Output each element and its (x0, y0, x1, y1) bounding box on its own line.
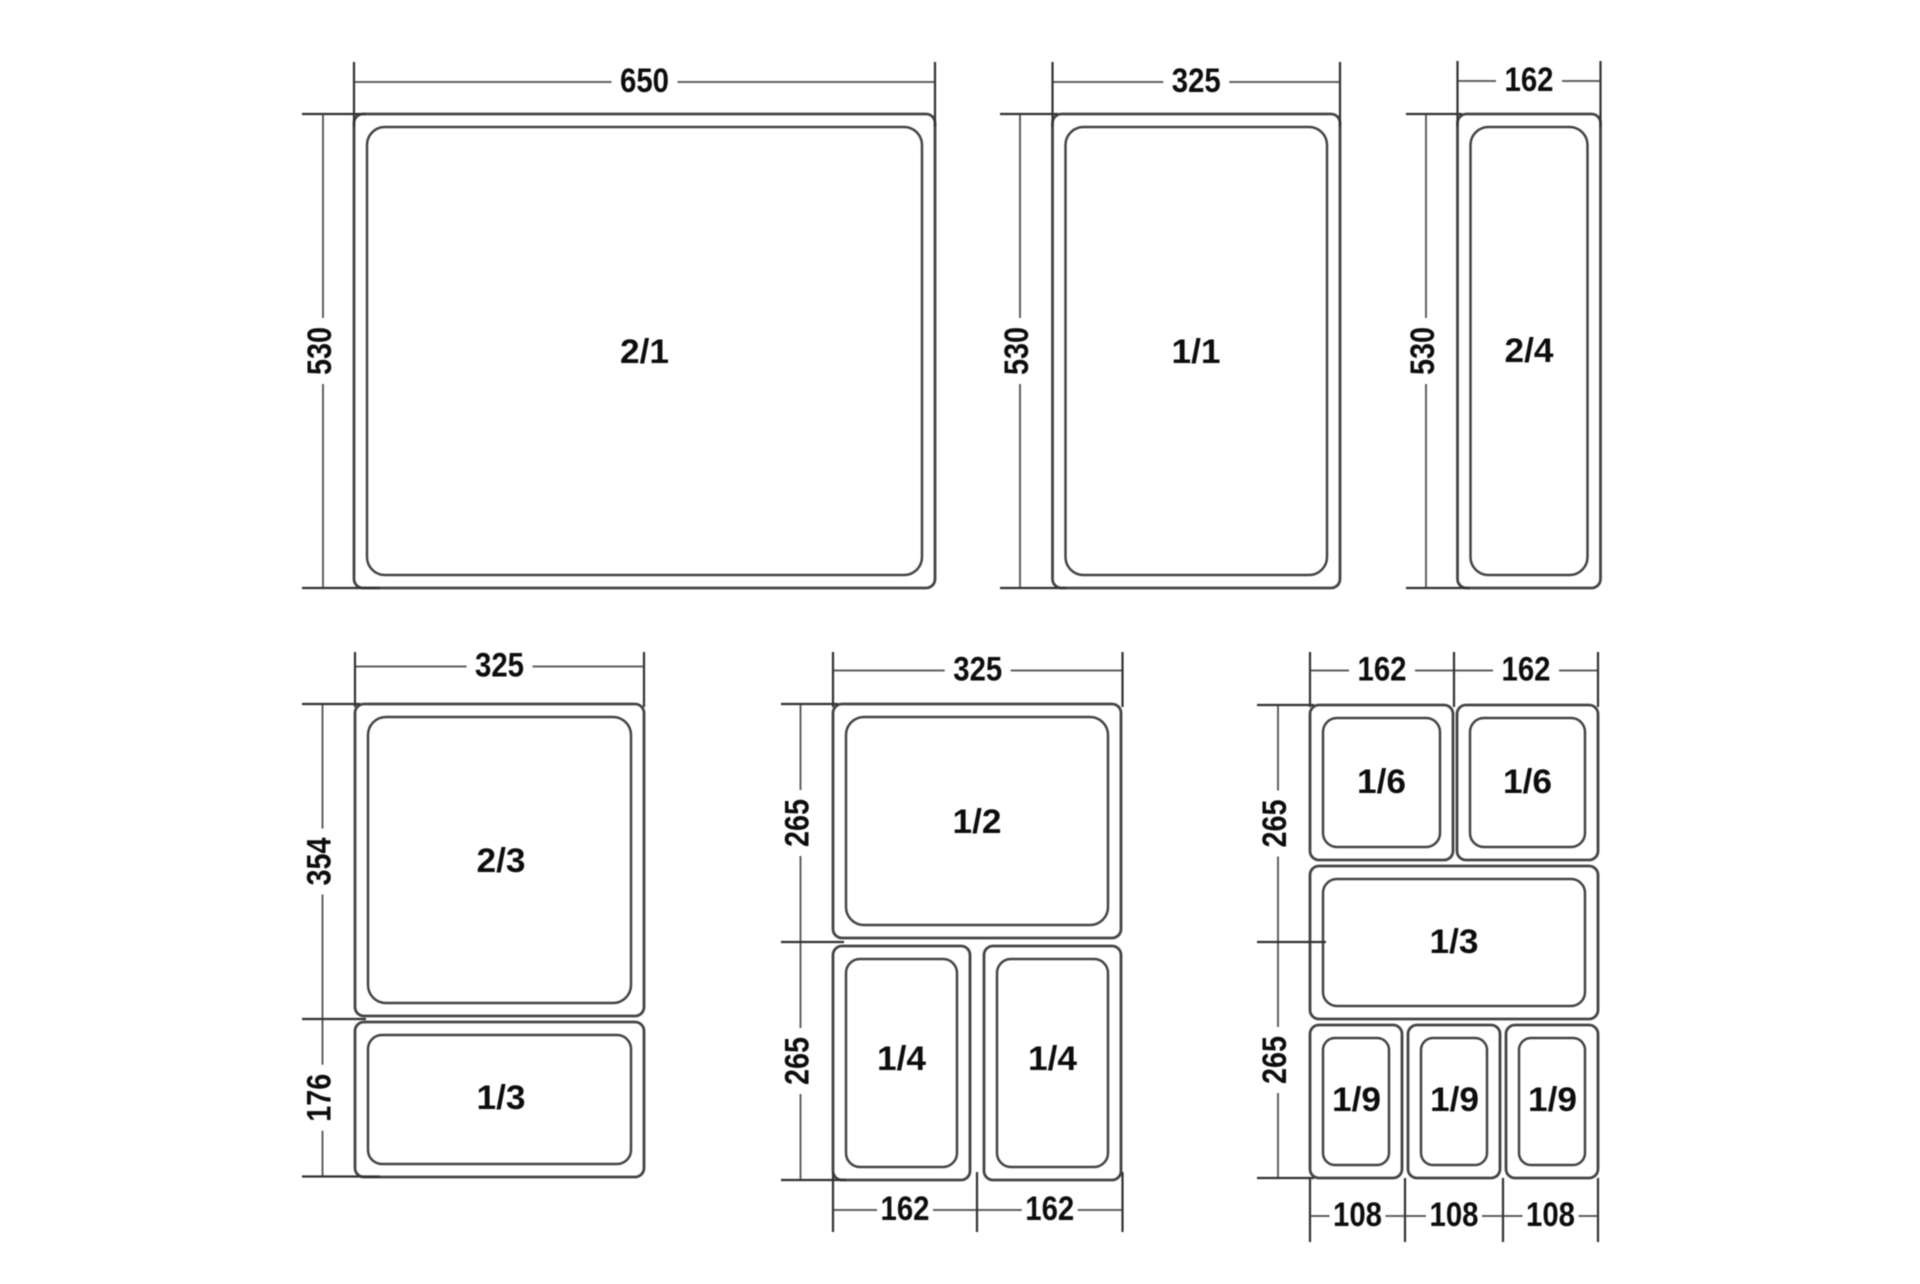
svg-text:108: 108 (1430, 1196, 1479, 1234)
svg-text:325: 325 (475, 647, 524, 685)
svg-text:1/4: 1/4 (877, 1040, 926, 1078)
svg-text:530: 530 (301, 327, 339, 375)
svg-text:1/3: 1/3 (1430, 923, 1479, 961)
svg-text:108: 108 (1333, 1196, 1382, 1234)
svg-text:1/9: 1/9 (1332, 1081, 1381, 1119)
svg-text:354: 354 (301, 837, 339, 885)
svg-text:176: 176 (301, 1074, 339, 1122)
svg-text:1/3: 1/3 (477, 1079, 526, 1117)
svg-text:265: 265 (779, 799, 817, 847)
svg-text:530: 530 (998, 327, 1036, 375)
svg-text:1/6: 1/6 (1503, 763, 1552, 801)
svg-text:325: 325 (1172, 62, 1221, 100)
svg-text:265: 265 (779, 1037, 817, 1085)
svg-text:162: 162 (1025, 1190, 1074, 1228)
svg-text:1/4: 1/4 (1028, 1040, 1077, 1078)
svg-text:650: 650 (620, 62, 669, 100)
svg-text:162: 162 (1358, 651, 1407, 689)
svg-text:265: 265 (1256, 800, 1294, 848)
svg-text:1/6: 1/6 (1357, 763, 1406, 801)
svg-text:325: 325 (953, 651, 1002, 689)
svg-text:108: 108 (1526, 1196, 1575, 1234)
svg-text:2/3: 2/3 (477, 842, 526, 880)
svg-text:162: 162 (881, 1190, 930, 1228)
svg-text:1/1: 1/1 (1172, 333, 1221, 371)
svg-text:2/1: 2/1 (620, 333, 669, 371)
svg-text:162: 162 (1505, 61, 1554, 99)
svg-text:2/4: 2/4 (1505, 332, 1554, 370)
svg-text:265: 265 (1256, 1036, 1294, 1084)
svg-text:1/9: 1/9 (1430, 1081, 1479, 1119)
svg-text:1/9: 1/9 (1528, 1081, 1577, 1119)
svg-text:530: 530 (1404, 327, 1442, 375)
svg-text:162: 162 (1502, 651, 1551, 689)
svg-text:1/2: 1/2 (953, 803, 1002, 841)
